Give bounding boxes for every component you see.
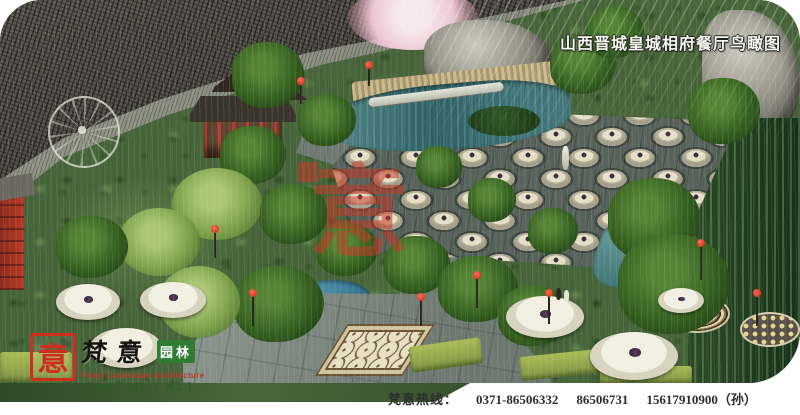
red-corridor-wall	[0, 196, 24, 290]
mosaic-platter	[740, 312, 800, 347]
hotline-phone-3: 15617910900（孙）	[646, 389, 757, 408]
brand-name-suffix: 园林	[157, 340, 195, 363]
red-lantern	[368, 68, 370, 86]
watermark-square	[298, 162, 318, 182]
round-table	[658, 288, 704, 313]
hotline-label: 梵意热线：	[388, 389, 458, 408]
red-lantern	[548, 296, 550, 324]
watermark-glyph: 意	[309, 164, 409, 264]
hotline-phone-1: 0371-86506332	[476, 392, 558, 408]
round-table	[56, 284, 120, 320]
person	[564, 290, 569, 302]
logo-seal: 意	[30, 333, 76, 381]
rendering-title: 山西晋城皇城相府餐厅鸟瞰图	[560, 30, 781, 54]
red-lantern	[476, 278, 478, 308]
brand-services: 【 规划 ｜ 设计 ｜ 施工 】	[82, 381, 204, 393]
company-watermark-seal: 意	[296, 160, 422, 268]
seal-glyph: 意	[37, 334, 69, 380]
round-table	[506, 296, 584, 338]
company-logo: 意 梵意 园林 Fanyi Landscape Architecture 【 规…	[30, 333, 204, 393]
brand-english: Fanyi Landscape Architecture	[82, 371, 204, 380]
statue	[562, 146, 569, 170]
red-lantern	[300, 84, 302, 104]
brand-row: 梵意 园林	[82, 333, 204, 369]
round-table	[590, 332, 678, 380]
red-lantern	[420, 300, 422, 326]
brand-name-script: 梵意	[80, 333, 154, 369]
red-lantern	[214, 232, 216, 258]
round-table	[140, 282, 206, 318]
person	[556, 288, 561, 300]
willow-tree	[118, 208, 200, 276]
contact-footer: 梵意热线： 0371-86506332 86506731 15617910900…	[388, 389, 757, 408]
water-wheel	[48, 96, 120, 168]
hotline-phone-2: 86506731	[576, 392, 628, 408]
red-lantern	[700, 246, 702, 280]
red-lantern	[252, 296, 254, 326]
logo-text-block: 梵意 园林 Fanyi Landscape Architecture 【 规划 …	[82, 333, 204, 393]
red-lantern	[756, 296, 758, 326]
pond-island	[468, 106, 540, 136]
garden-rendering: 意 山西晋城皇城相府餐厅鸟瞰图	[0, 0, 800, 383]
